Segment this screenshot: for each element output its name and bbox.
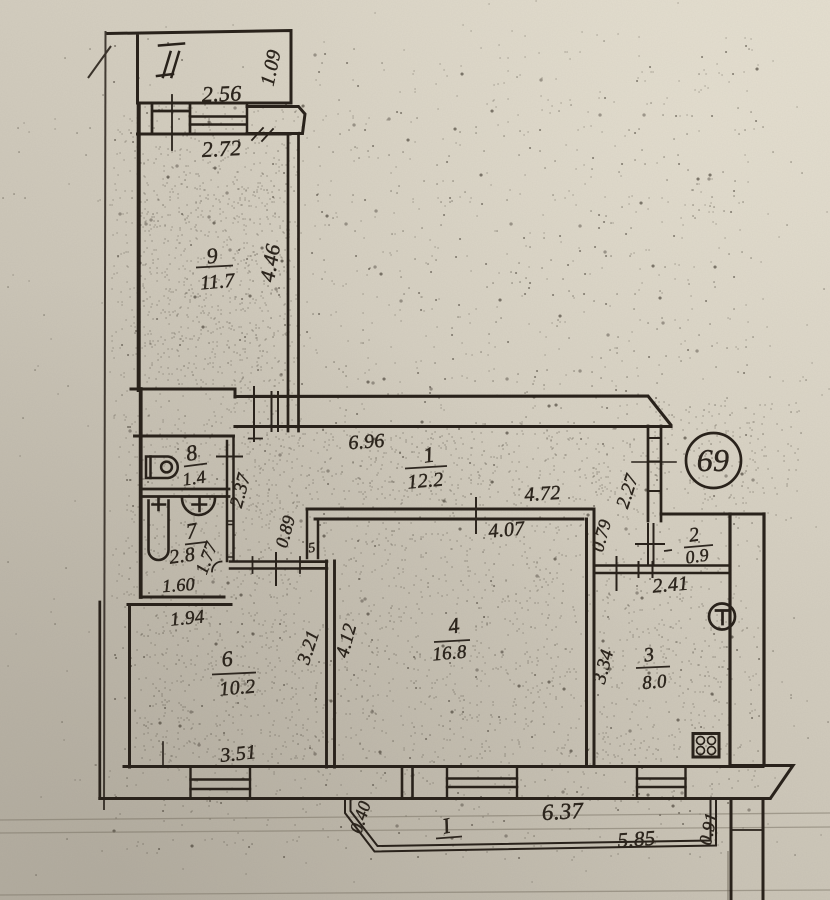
svg-text:5.85: 5.85 bbox=[617, 826, 657, 853]
svg-text:3.51: 3.51 bbox=[218, 741, 257, 767]
svg-text:69: 69 bbox=[697, 442, 730, 478]
svg-text:6.96: 6.96 bbox=[348, 430, 386, 454]
svg-text:2.56: 2.56 bbox=[201, 80, 242, 106]
svg-text:11.7: 11.7 bbox=[199, 269, 236, 294]
svg-text:16.8: 16.8 bbox=[431, 642, 467, 666]
svg-text:1.4: 1.4 bbox=[181, 467, 207, 490]
svg-text:4.72: 4.72 bbox=[524, 482, 562, 506]
svg-text:12.2: 12.2 bbox=[406, 468, 444, 493]
svg-text:1.94: 1.94 bbox=[169, 606, 206, 631]
svg-text:1.60: 1.60 bbox=[162, 574, 196, 596]
svg-text:4.07: 4.07 bbox=[487, 517, 526, 542]
svg-text:2.72: 2.72 bbox=[201, 135, 242, 162]
svg-text:8.0: 8.0 bbox=[641, 671, 668, 694]
svg-text:2.41: 2.41 bbox=[651, 572, 689, 597]
svg-text:0.9: 0.9 bbox=[684, 545, 710, 568]
svg-text:6.37: 6.37 bbox=[541, 798, 585, 825]
svg-text:10.2: 10.2 bbox=[218, 675, 256, 700]
